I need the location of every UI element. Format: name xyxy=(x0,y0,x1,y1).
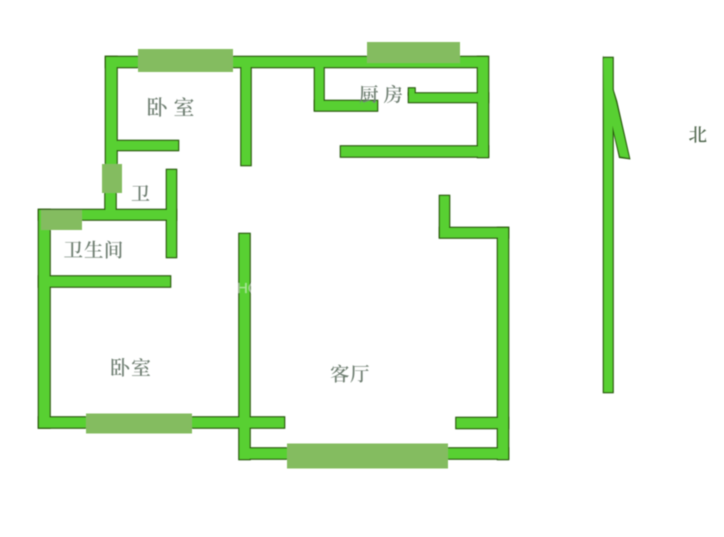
svg-text:HO: HO xyxy=(237,280,260,297)
